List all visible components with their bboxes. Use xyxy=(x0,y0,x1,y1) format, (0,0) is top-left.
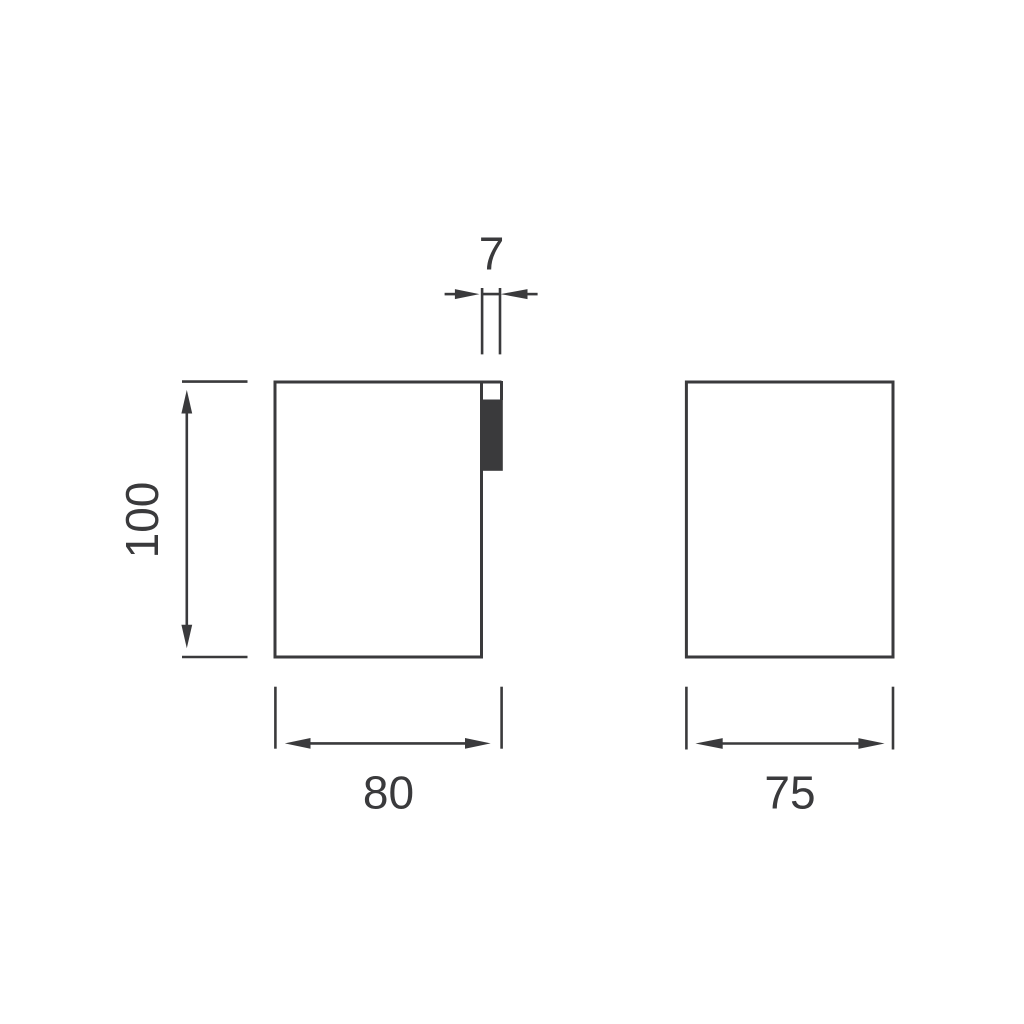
svg-text:100: 100 xyxy=(116,482,168,559)
svg-text:7: 7 xyxy=(479,228,505,280)
svg-text:80: 80 xyxy=(363,767,414,819)
svg-text:75: 75 xyxy=(764,767,815,819)
